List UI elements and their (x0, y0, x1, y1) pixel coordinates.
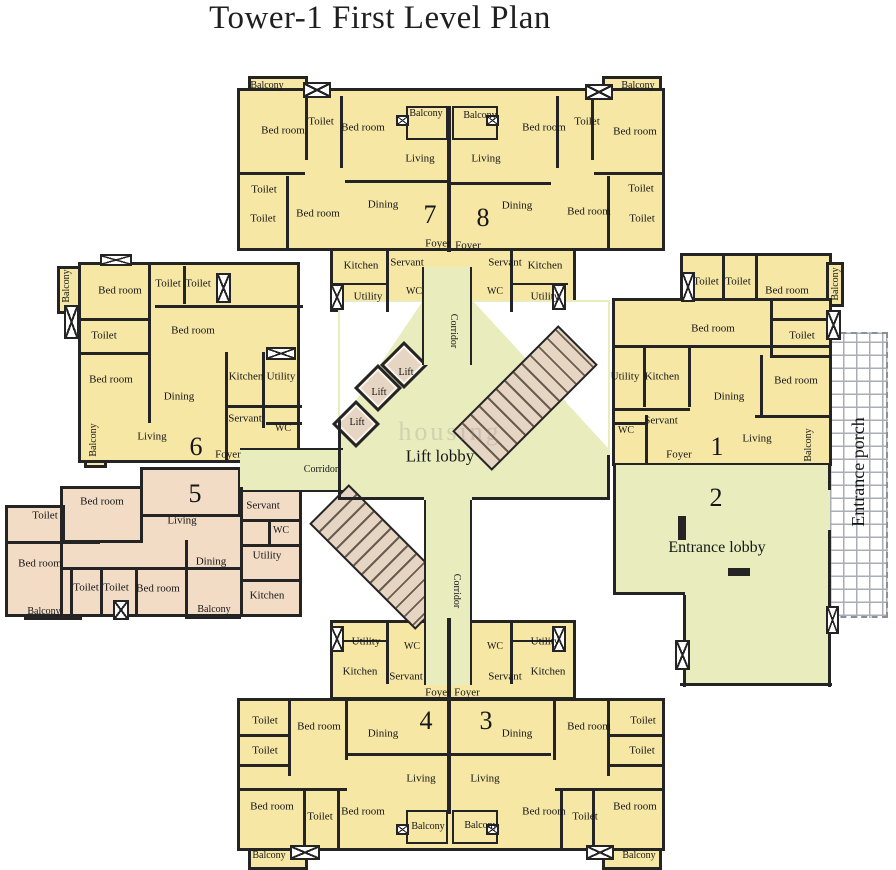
kitchen-label: Kitchen (528, 261, 563, 272)
window-symbol (826, 310, 841, 340)
wall-segment (262, 352, 265, 428)
3-label: 3 (480, 708, 493, 734)
living-label: Living (742, 434, 771, 445)
foyer-label: Foyer (425, 688, 451, 699)
wall-segment (185, 540, 188, 617)
bed-room-label: Bed room (522, 807, 566, 818)
corridor-top (422, 267, 472, 365)
wc-label: WC (618, 426, 634, 436)
window-symbol (290, 845, 320, 860)
1-label: 1 (711, 434, 724, 460)
servant-label: Servant (390, 258, 424, 269)
wall-segment (447, 618, 451, 814)
wall-segment (338, 497, 424, 500)
living-label: Living (405, 154, 434, 165)
toilet-label: Toilet (91, 331, 117, 342)
5-label: 5 (189, 481, 202, 507)
wall-segment (688, 345, 691, 407)
wall-segment (760, 355, 763, 417)
wall-segment (155, 305, 303, 308)
wall-segment (303, 788, 306, 850)
window-symbol (266, 347, 296, 360)
wall-segment (80, 318, 148, 321)
bed-room-label: Bed room (341, 807, 385, 818)
7-label: 7 (424, 202, 437, 228)
living-label: Living (167, 516, 196, 527)
floor-plan: Tower-1 First Level Plan BalconyBed room… (0, 0, 896, 870)
wall-segment (345, 180, 447, 183)
wc-label: WC (487, 287, 503, 297)
wall-segment (615, 592, 685, 595)
utility-label: Utility (253, 551, 282, 562)
window-symbol (64, 305, 79, 339)
toilet-label: Toilet (693, 277, 719, 288)
bed-room-label: Bed room (522, 123, 566, 134)
toilet-label: Toilet (32, 511, 58, 522)
balcony-label: Balcony (250, 81, 283, 91)
wall-segment (828, 465, 831, 490)
bed-room-label: Bed room (613, 127, 657, 138)
wall-segment (305, 96, 308, 160)
window-symbol (396, 115, 409, 126)
bed-room-label: Bed room (691, 324, 735, 335)
window-symbol (586, 845, 614, 860)
watermark: housing (398, 417, 501, 447)
toilet-label: Toilet (251, 185, 277, 196)
utility-label: Utility (531, 637, 560, 648)
window-symbol (330, 284, 344, 310)
bed-room-label: Bed room (567, 722, 611, 733)
bed-room-label: Bed room (296, 209, 340, 220)
toilet-label: Toilet (252, 746, 278, 757)
kitchen-label: Kitchen (344, 261, 379, 272)
4-label: 4 (420, 708, 433, 734)
living-label: Living (471, 154, 500, 165)
wc-label: WC (406, 287, 422, 297)
lift-label: Lift (372, 388, 387, 398)
window-symbol (826, 606, 839, 634)
kitchen-label: Kitchen (229, 372, 264, 383)
foyer-label: Foyer (455, 241, 481, 252)
wall-segment (612, 408, 690, 411)
utility-label: Utility (354, 292, 383, 303)
bed-room-label: Bed room (18, 559, 62, 570)
foyer-label: Foyer (454, 688, 480, 699)
lift-label: Lift (350, 418, 365, 428)
toilet-label: Toilet (630, 716, 656, 727)
toilet-label: Toilet (789, 331, 815, 342)
living-label: Living (470, 774, 499, 785)
bed-room-label: Bed room (774, 376, 818, 387)
6-label: 6 (190, 434, 203, 460)
wall-segment (237, 788, 347, 791)
dining-label: Dining (196, 557, 227, 568)
utility-label: Utility (611, 372, 640, 383)
utility-label: Utility (352, 637, 381, 648)
lift-label: Lift (399, 368, 414, 378)
window-symbol (330, 626, 344, 652)
wall-segment (345, 753, 447, 756)
servant-label: Servant (488, 258, 522, 269)
balcony-label: Balcony (463, 111, 496, 121)
balcony-label: Balcony (89, 423, 99, 456)
wall-segment (268, 519, 271, 545)
living-label: Living (406, 774, 435, 785)
corridor-label: Corridor (451, 574, 461, 608)
window-symbol (113, 600, 129, 620)
foyer-label: Foyer (425, 239, 451, 250)
wall-segment (345, 698, 348, 760)
wall-segment (472, 497, 610, 500)
wc-label: WC (487, 642, 503, 652)
wall-segment (770, 318, 832, 321)
toilet-label: Toilet (155, 279, 181, 290)
toilet-label: Toilet (629, 214, 655, 225)
bed-room-label: Bed room (136, 584, 180, 595)
bed-room-label: Bed room (765, 286, 809, 297)
balcony-label: Balcony (411, 822, 444, 832)
kitchen-label: Kitchen (531, 667, 566, 678)
balcony-label: Balcony (804, 428, 814, 461)
balcony-label: Balcony (621, 81, 654, 91)
window-symbol (675, 640, 690, 670)
wall-segment (451, 182, 551, 185)
wall-segment (240, 544, 302, 547)
wall-segment (678, 516, 686, 540)
dining-label: Dining (714, 392, 745, 403)
wall-segment (591, 96, 594, 160)
wall-segment (286, 176, 289, 250)
wall-segment (140, 486, 143, 543)
toilet-label: Toilet (252, 716, 278, 727)
balcony-label: Balcony (197, 605, 230, 615)
window-symbol (396, 824, 409, 835)
bed-room-label: Bed room (341, 123, 385, 134)
wall-segment (240, 579, 302, 582)
8-label: 8 (477, 205, 490, 231)
kitchen-label: Kitchen (343, 667, 378, 678)
wall-segment (237, 734, 289, 737)
wall-segment (451, 753, 551, 756)
toilet-label: Toilet (628, 184, 654, 195)
servant-label: Servant (389, 672, 423, 683)
servant-label: Servant (488, 672, 522, 683)
toilet-label: Toilet (250, 214, 276, 225)
bed-room-label: Bed room (98, 286, 142, 297)
wall-segment (62, 540, 142, 543)
wall-segment (148, 305, 151, 423)
entrance-porch-label: Entrance porch (849, 417, 867, 526)
balcony-label: Balcony (409, 109, 442, 119)
wall-segment (240, 487, 243, 617)
wall-segment (62, 505, 65, 543)
servant-label: Servant (644, 416, 678, 427)
wall-segment (225, 405, 302, 408)
toilet-label: Toilet (725, 277, 751, 288)
corridor-label: Corridor (304, 465, 338, 475)
balcony-label: Balcony (27, 607, 60, 617)
kitchen-label: Kitchen (645, 372, 680, 383)
dining-label: Dining (368, 200, 399, 211)
dining-label: Dining (368, 729, 399, 740)
wall-segment (560, 788, 563, 850)
toilet-label: Toilet (308, 117, 334, 128)
bed-room-label: Bed room (171, 326, 215, 337)
utility-label: Utility (531, 292, 560, 303)
foyer-label: Foyer (666, 450, 692, 461)
kitchen-label: Kitchen (250, 591, 285, 602)
wall-segment (338, 420, 341, 500)
balcony-label: Balcony (831, 267, 841, 300)
balcony-label: Balcony (622, 851, 655, 861)
wall-segment (555, 788, 665, 791)
bed-room-label: Bed room (613, 802, 657, 813)
dining-label: Dining (164, 392, 195, 403)
top-wing-main (237, 88, 665, 251)
wall-segment (755, 415, 832, 418)
wall-segment (610, 764, 665, 767)
servant-label: Servant (246, 501, 280, 512)
window-symbol (303, 82, 331, 98)
lift-lobby-label: Lift lobby (406, 448, 474, 465)
entrance-lobby (615, 465, 830, 685)
bed-room-label: Bed room (261, 126, 305, 137)
corridor-label: Corridor (448, 314, 458, 348)
plan-title: Tower-1 First Level Plan (150, 0, 610, 37)
wall-segment (237, 172, 305, 175)
wc-label: WC (275, 424, 291, 434)
wall-segment (237, 764, 289, 767)
dining-label: Dining (502, 729, 533, 740)
window-symbol (100, 254, 132, 266)
toilet-label: Toilet (73, 583, 99, 594)
servant-label: Servant (228, 414, 262, 425)
wc-label: WC (404, 642, 420, 652)
toilet-label: Toilet (185, 279, 211, 290)
foyer-label: Foyer (215, 450, 241, 461)
wall-segment (240, 519, 302, 522)
toilet-label: Toilet (574, 117, 600, 128)
wall-segment (728, 568, 750, 576)
wc-label: WC (273, 526, 289, 536)
bed-room-label: Bed room (89, 375, 133, 386)
balcony-label: Balcony (62, 269, 72, 302)
wall-segment (80, 352, 148, 355)
wall-segment (680, 683, 832, 686)
bed-room-label: Bed room (80, 497, 124, 508)
dining-label: Dining (502, 201, 533, 212)
entrance-lobby-label: Entrance lobby (668, 540, 765, 556)
2-label: 2 (710, 485, 723, 511)
toilet-label: Toilet (629, 746, 655, 757)
wall-segment (447, 106, 451, 252)
wall-segment (613, 465, 616, 595)
balcony-label: Balcony (252, 851, 285, 861)
wall-segment (770, 355, 832, 358)
bed-room-label: Bed room (567, 207, 611, 218)
window-symbol (216, 273, 231, 303)
utility-label: Utility (267, 372, 296, 383)
bed-room-label: Bed room (250, 802, 294, 813)
toilet-label: Toilet (572, 812, 598, 823)
toilet-label: Toilet (307, 812, 333, 823)
wall-segment (553, 698, 556, 760)
wall-segment (594, 172, 665, 175)
toilet-label: Toilet (103, 583, 129, 594)
wall-segment (607, 455, 610, 500)
bed-room-label: Bed room (297, 722, 341, 733)
wall-segment (610, 734, 665, 737)
balcony-label: Balcony (464, 821, 497, 831)
wall-segment (755, 253, 758, 301)
wall-segment (337, 788, 340, 850)
wall-segment (386, 248, 389, 312)
window-symbol (585, 84, 613, 100)
living-label: Living (137, 432, 166, 443)
